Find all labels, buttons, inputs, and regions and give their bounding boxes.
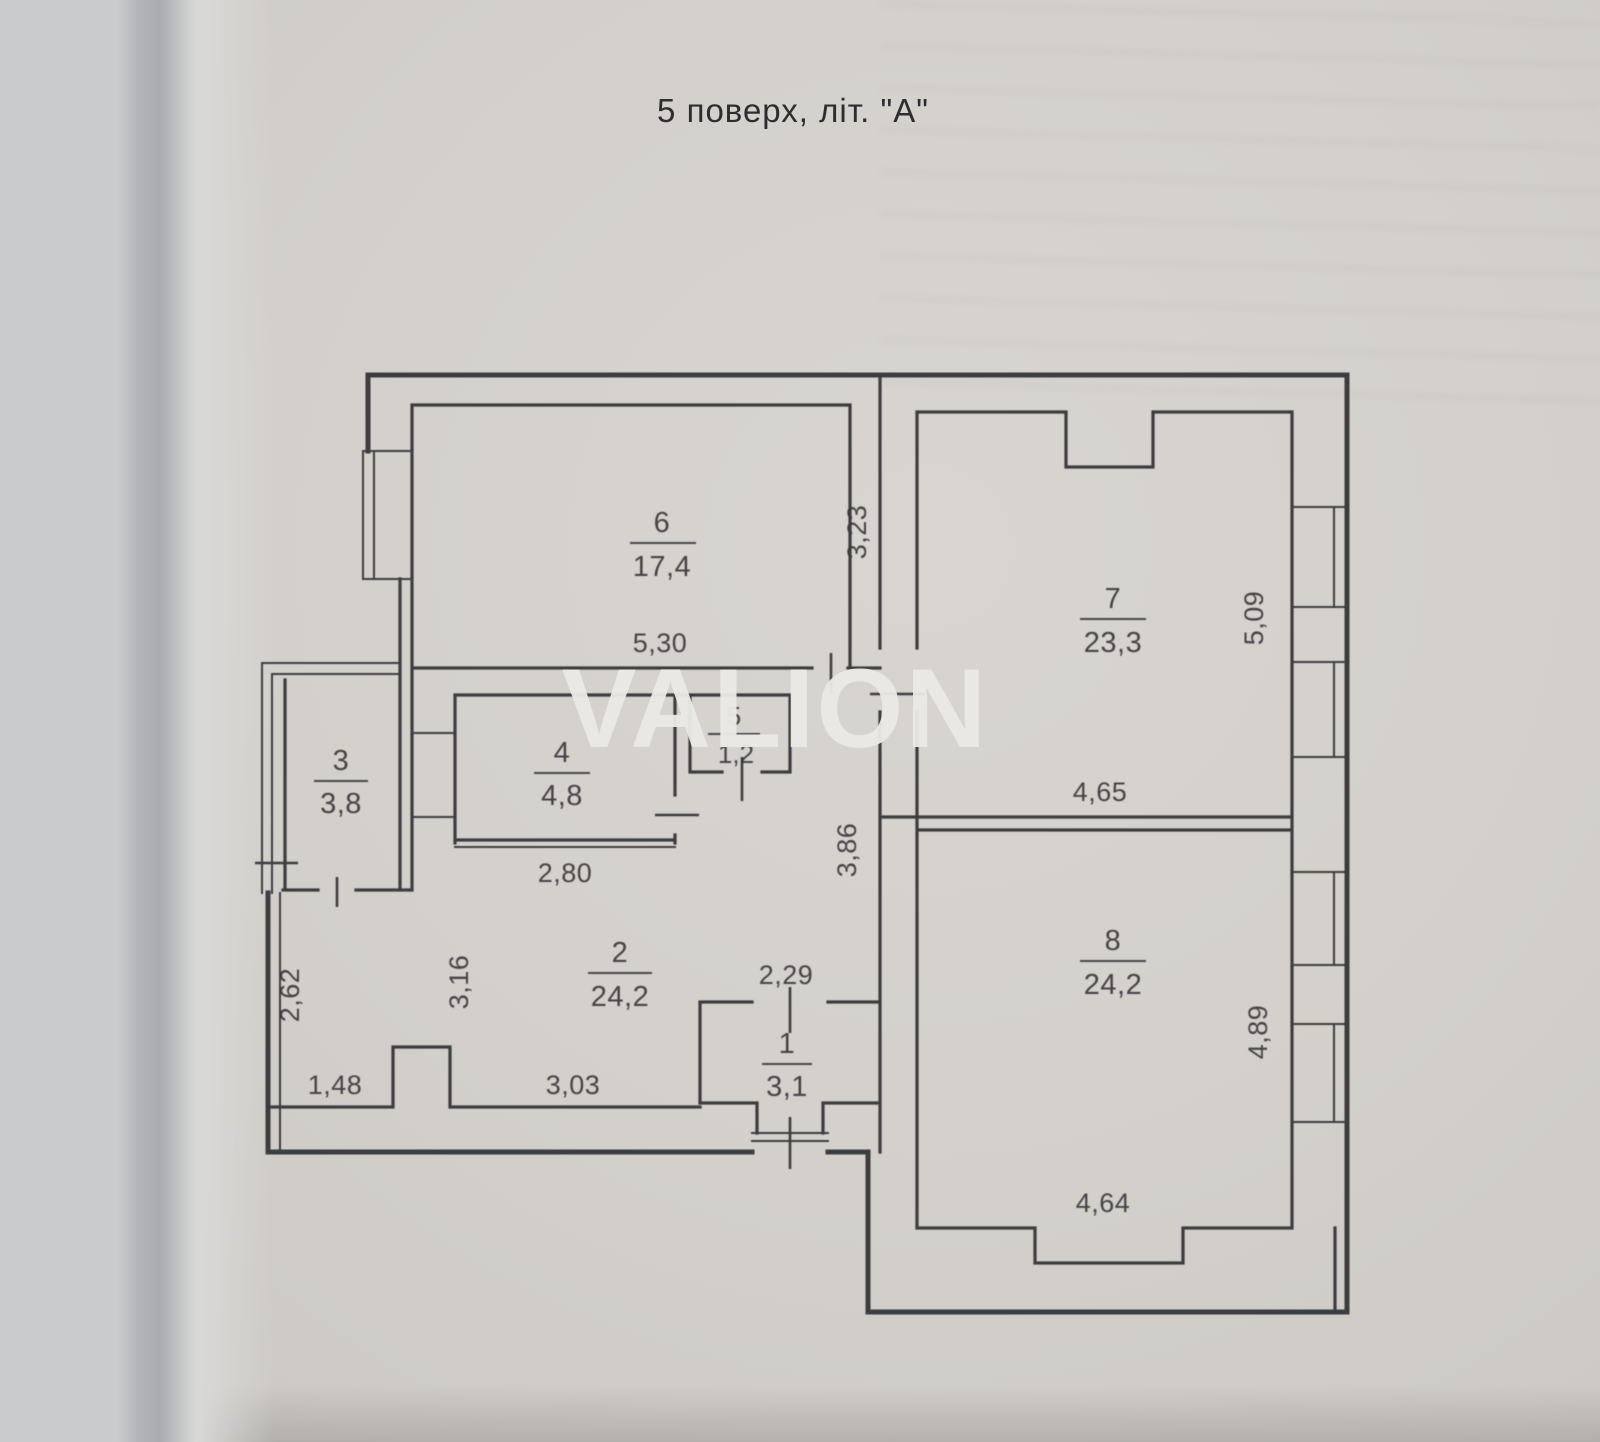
dim-room4-width: 2,80 — [538, 858, 593, 888]
floor-plan-photo: 5 поверх, літ. "А" — [0, 0, 1600, 1442]
dim-left-bottom-width: 1,48 — [308, 1070, 363, 1100]
dimension-labels: 5,30 3,23 5,09 4,65 2,80 3,86 2,62 3,16 … — [275, 505, 1273, 1218]
left-wall-window — [363, 451, 412, 579]
room-8-label: 8 24,2 — [1080, 925, 1146, 1001]
dim-wall-6-7: 3,23 — [842, 505, 872, 560]
room-3-number: 3 — [333, 745, 350, 777]
page-title: 5 поверх, літ. "А" — [657, 92, 929, 129]
room-2-area: 24,2 — [591, 981, 649, 1013]
dim-room1-width: 2,29 — [759, 960, 814, 990]
room-8-area: 24,2 — [1084, 969, 1142, 1001]
dim-hall-bottom-width: 3,03 — [546, 1070, 601, 1100]
valion-watermark: VALION — [562, 646, 989, 771]
dim-left-lower-height: 2,62 — [275, 968, 305, 1023]
room-3-label: 3 3,8 — [314, 745, 368, 820]
inner-walls — [268, 375, 1335, 1312]
room-6-area: 17,4 — [633, 551, 691, 583]
room-6-label: 6 17,4 — [630, 507, 696, 583]
floor-plan-svg: 5 поверх, літ. "А" — [0, 0, 1600, 1442]
room-6-number: 6 — [654, 507, 671, 539]
dim-room8-height: 4,89 — [1243, 1005, 1273, 1060]
room-7-number: 7 — [1105, 583, 1122, 615]
room-3-area: 3,8 — [320, 788, 362, 820]
room-1-number: 1 — [779, 1028, 796, 1060]
room-4-area: 4,8 — [541, 780, 583, 812]
dim-room7-height: 5,09 — [1239, 591, 1269, 646]
dim-hall-left-height: 3,16 — [444, 955, 474, 1010]
room-1-label: 1 3,1 — [762, 1028, 812, 1103]
outer-walls — [268, 375, 1347, 1312]
room-7-label: 7 23,3 — [1080, 583, 1146, 659]
dim-corridor-height: 3,86 — [832, 823, 862, 878]
room-2-label: 2 24,2 — [588, 937, 652, 1013]
room-2-number: 2 — [612, 937, 629, 969]
room-7-area: 23,3 — [1084, 627, 1142, 659]
room-8-number: 8 — [1105, 925, 1122, 957]
dim-room7-width: 4,65 — [1073, 777, 1128, 807]
room-1-area: 3,1 — [766, 1071, 808, 1103]
room-labels: 6 17,4 7 23,3 8 24,2 2 24,2 — [314, 507, 1146, 1103]
right-wall-windows — [1292, 507, 1347, 1122]
dim-room8-width: 4,64 — [1076, 1188, 1131, 1218]
